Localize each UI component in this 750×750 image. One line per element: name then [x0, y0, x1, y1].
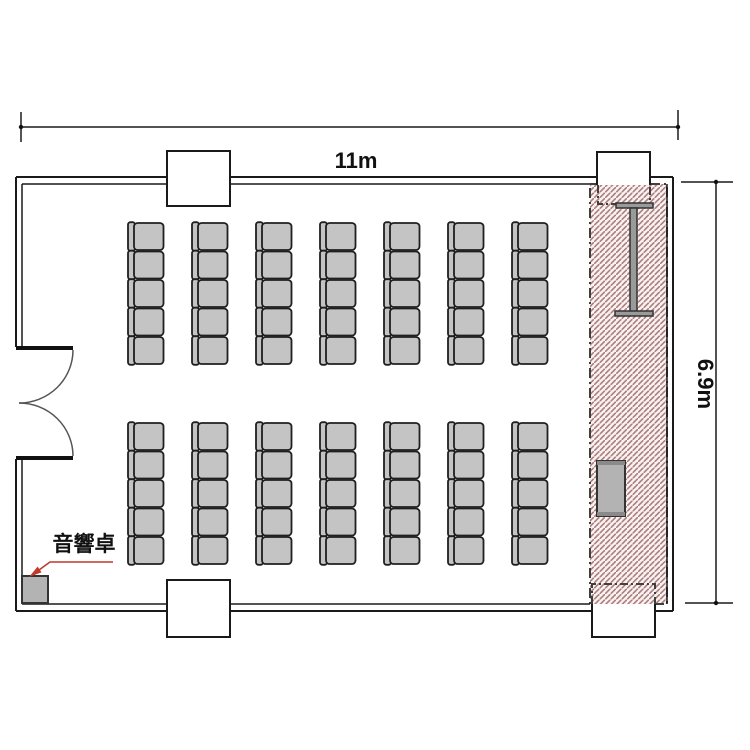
chair-seat [518, 509, 548, 536]
chair [384, 336, 420, 365]
chair-seat [390, 337, 420, 364]
dimension-width-label: 11m [335, 148, 378, 173]
chair [448, 308, 484, 337]
chair-seat [454, 280, 484, 307]
chair [320, 422, 356, 451]
door-swing-arc-bottom [19, 403, 73, 456]
chair [128, 536, 164, 565]
audio-desk [22, 576, 48, 603]
chair [192, 222, 228, 251]
chair [192, 451, 228, 480]
chair-seat [454, 423, 484, 450]
chair-seat [198, 537, 228, 564]
chair [256, 536, 292, 565]
chair-seat [134, 537, 164, 564]
chair-seat [326, 337, 356, 364]
chair-seat [262, 223, 292, 250]
chair [320, 536, 356, 565]
chair-seat [390, 537, 420, 564]
chair [448, 536, 484, 565]
chair-seat [454, 252, 484, 279]
wall-alcove-top-right [597, 152, 650, 185]
chair [384, 479, 420, 508]
chair [320, 222, 356, 251]
chair [128, 422, 164, 451]
stage-notch-bottom [592, 584, 655, 604]
chair-seat [518, 337, 548, 364]
chair [128, 308, 164, 337]
chair-seat [198, 423, 228, 450]
chair-seat [326, 309, 356, 336]
chair [512, 479, 548, 508]
chair-seat [198, 309, 228, 336]
chair-seat [390, 452, 420, 479]
chair [128, 336, 164, 365]
chair-seat [454, 509, 484, 536]
dimension-width: 11m [19, 110, 680, 173]
chair [384, 451, 420, 480]
chair [512, 508, 548, 537]
chair-seat [518, 309, 548, 336]
chair [448, 451, 484, 480]
chair-seat [518, 280, 548, 307]
chair [512, 222, 548, 251]
chair [256, 451, 292, 480]
chair-seat [198, 452, 228, 479]
chair [128, 279, 164, 308]
wall-alcove-bottom-left [167, 580, 230, 637]
chair [512, 536, 548, 565]
podium-bottom-edge [597, 512, 625, 516]
floor-plan: 音響卓 11m 6.9m [0, 0, 750, 750]
chair-seat [454, 480, 484, 507]
chair-seat [454, 337, 484, 364]
chair [320, 479, 356, 508]
chair [192, 279, 228, 308]
chair-seat [262, 480, 292, 507]
chair [192, 536, 228, 565]
chair [448, 479, 484, 508]
chair-seat [134, 252, 164, 279]
chair [256, 479, 292, 508]
chair [256, 279, 292, 308]
chair [384, 222, 420, 251]
chair [320, 451, 356, 480]
chair [192, 308, 228, 337]
chair [512, 279, 548, 308]
chair [512, 336, 548, 365]
screen-stem [630, 208, 637, 312]
chair [448, 222, 484, 251]
chair [128, 451, 164, 480]
screen-bottom-bar [615, 311, 653, 316]
chair [192, 336, 228, 365]
wall-alcove-top-left [167, 151, 230, 206]
chair-seat [262, 537, 292, 564]
chair-seat [198, 480, 228, 507]
podium-top-edge [597, 461, 625, 465]
chair [192, 422, 228, 451]
chair [192, 508, 228, 537]
chair-seat [134, 509, 164, 536]
chair-seat [134, 337, 164, 364]
chair [384, 251, 420, 280]
chair-seat [518, 480, 548, 507]
chair-seat [518, 252, 548, 279]
chair [256, 308, 292, 337]
chair-seat [198, 337, 228, 364]
chair-seat [326, 480, 356, 507]
chair [448, 422, 484, 451]
chair-seat [518, 537, 548, 564]
entrance-door [16, 348, 73, 458]
chair-seat [454, 309, 484, 336]
chair [384, 422, 420, 451]
chair-seat [326, 223, 356, 250]
stage-notch-top [598, 185, 650, 204]
chair-seat [326, 452, 356, 479]
chair-seat [134, 280, 164, 307]
chair [384, 508, 420, 537]
chair-seat [198, 280, 228, 307]
dimension-dot [714, 601, 718, 605]
chair [448, 508, 484, 537]
chair-seat [134, 423, 164, 450]
wall-alcove-bottom-right [592, 604, 655, 637]
chair [448, 251, 484, 280]
chair [320, 336, 356, 365]
chair-seat [454, 223, 484, 250]
dimension-dot [19, 125, 23, 129]
chair-seat [454, 537, 484, 564]
dimension-dot [676, 125, 680, 129]
audio-desk-group: 音響卓 [22, 532, 116, 603]
chair-seat [390, 309, 420, 336]
chair-seat [134, 480, 164, 507]
chair-seat [518, 423, 548, 450]
door-swing-arc-top [19, 350, 73, 403]
chair [512, 422, 548, 451]
chair [384, 308, 420, 337]
chair [320, 251, 356, 280]
chair [384, 279, 420, 308]
chair-seat [390, 509, 420, 536]
audio-desk-label: 音響卓 [53, 532, 116, 556]
chair-seat [390, 280, 420, 307]
chair-seat [326, 537, 356, 564]
chair-seat [262, 309, 292, 336]
chair-seat [262, 423, 292, 450]
chair [512, 308, 548, 337]
stage-hatch-zone [590, 184, 667, 604]
chair [448, 279, 484, 308]
chair [320, 279, 356, 308]
chair [256, 422, 292, 451]
chair [448, 336, 484, 365]
chair-seat [198, 223, 228, 250]
chair-seat [454, 452, 484, 479]
chair-seat [198, 252, 228, 279]
chair [256, 508, 292, 537]
chair [128, 479, 164, 508]
chair [384, 536, 420, 565]
dimension-height-label: 6.9m [693, 359, 718, 409]
chair [256, 336, 292, 365]
leader-line [39, 562, 113, 570]
chair-seat [262, 452, 292, 479]
chair-seat [390, 252, 420, 279]
chairs-container [128, 222, 548, 565]
podium-body [597, 461, 625, 516]
chair-seat [262, 509, 292, 536]
chair [192, 251, 228, 280]
chair [256, 251, 292, 280]
chair [320, 308, 356, 337]
chair-seat [262, 252, 292, 279]
chair [192, 479, 228, 508]
chair [128, 251, 164, 280]
chair [128, 508, 164, 537]
dimension-dot [714, 180, 718, 184]
chair-seat [326, 509, 356, 536]
chair-seat [518, 452, 548, 479]
chair [128, 222, 164, 251]
chair-seat [134, 223, 164, 250]
chair-seat [262, 280, 292, 307]
chair-seat [390, 223, 420, 250]
dimension-height: 6.9m [681, 180, 733, 605]
chair [512, 251, 548, 280]
chair [256, 222, 292, 251]
chair-seat [326, 252, 356, 279]
chair [320, 508, 356, 537]
chair-seat [198, 509, 228, 536]
chair-seat [262, 337, 292, 364]
stage-area [590, 184, 667, 604]
chair-seat [390, 423, 420, 450]
podium [597, 461, 625, 516]
chair-seat [134, 309, 164, 336]
chair-seat [134, 452, 164, 479]
chair-seat [326, 280, 356, 307]
chair-seat [518, 223, 548, 250]
floor-plan-drawing: 音響卓 11m 6.9m [0, 0, 750, 750]
chair [512, 451, 548, 480]
chair-seat [390, 480, 420, 507]
chair-seat [326, 423, 356, 450]
